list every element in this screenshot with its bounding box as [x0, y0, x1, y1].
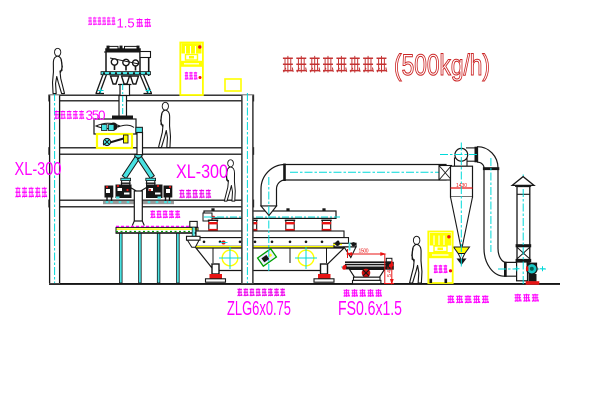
svg-text:XL-300: XL-300	[176, 162, 228, 183]
svg-text:XL-300: XL-300	[15, 159, 62, 179]
svg-text:ZLG6x0.75: ZLG6x0.75	[227, 298, 291, 320]
svg-text:1500: 1500	[359, 248, 369, 254]
svg-text:(500kg/h): (500kg/h)	[394, 49, 490, 82]
svg-text:545: 545	[387, 266, 393, 277]
svg-text:FS0.6x1.5: FS0.6x1.5	[338, 298, 402, 320]
svg-text:350: 350	[86, 108, 106, 123]
svg-text:1.5: 1.5	[117, 16, 135, 31]
svg-text:1430: 1430	[456, 183, 467, 189]
